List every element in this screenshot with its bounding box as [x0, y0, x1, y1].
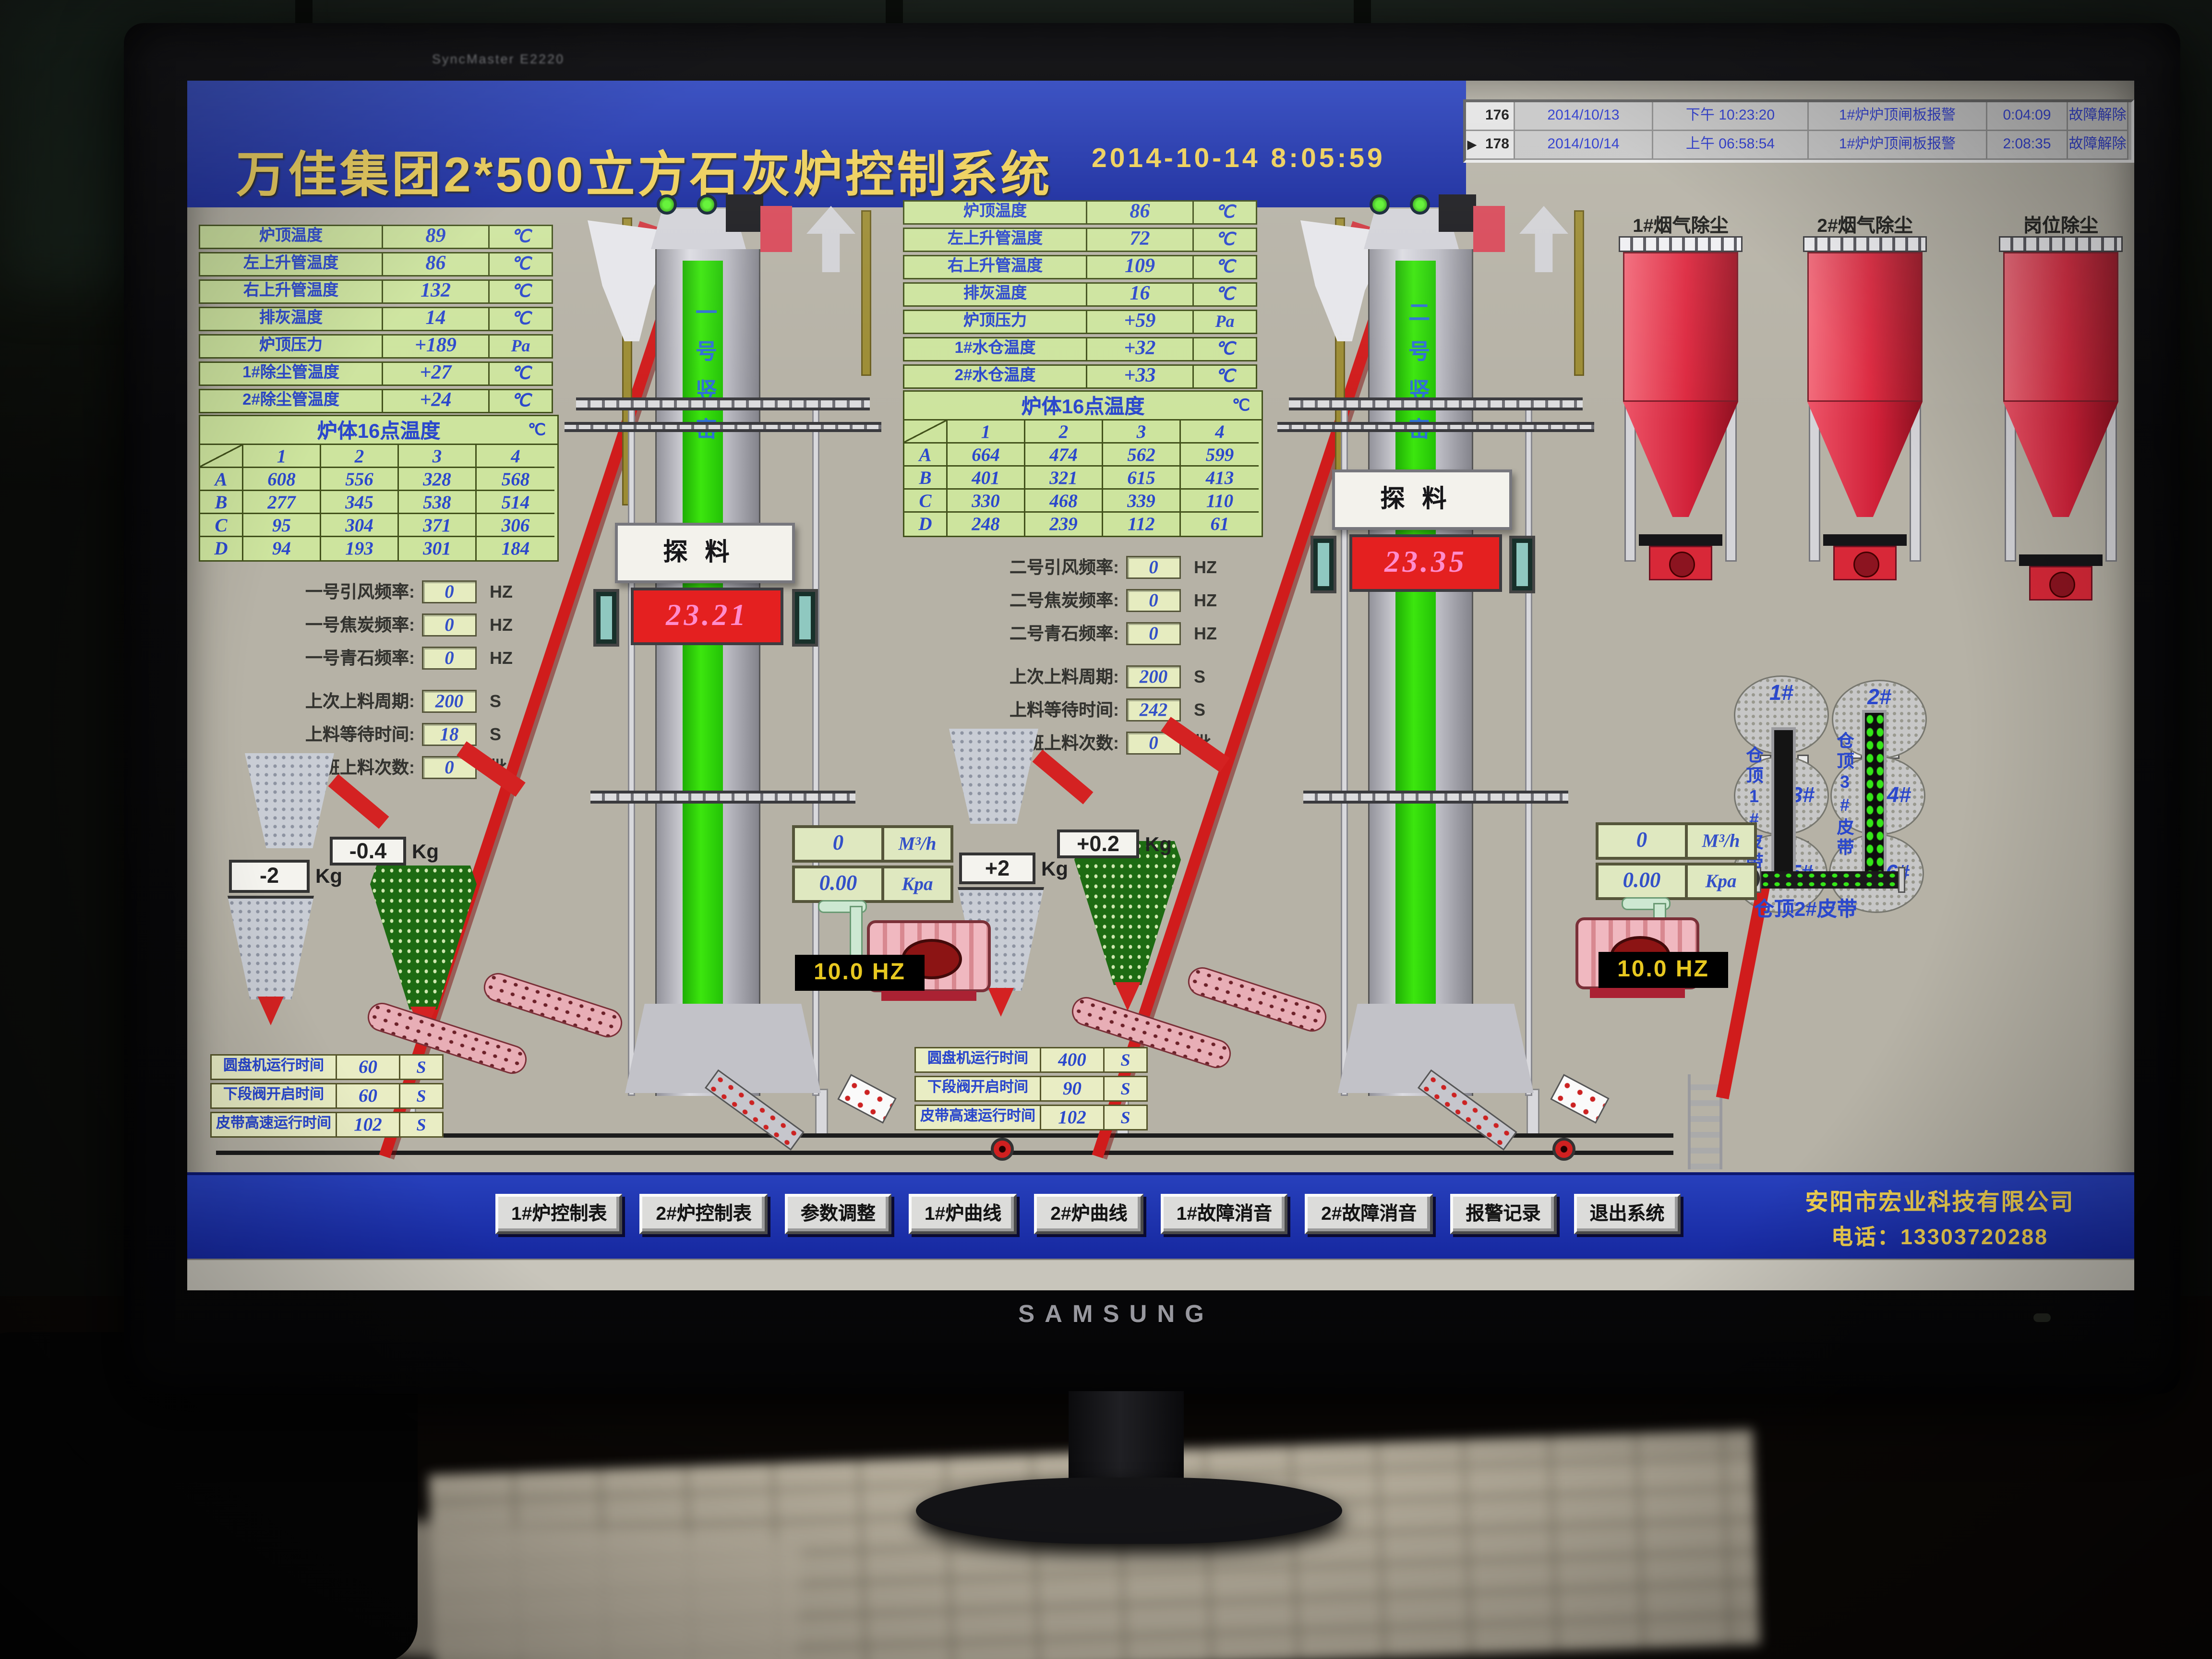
param-label: 一号青石频率:: [230, 645, 415, 670]
param-value-box[interactable]: 242: [1126, 698, 1181, 721]
temp-row: 1#除尘管温度 +27 ℃: [199, 361, 553, 386]
temp-value: 72: [1087, 228, 1194, 252]
power-led: [2033, 1313, 2051, 1322]
kiln-leg: [1525, 405, 1532, 1096]
matrix-cell: 339: [1103, 490, 1181, 513]
matrix-corner-cell: [200, 445, 243, 468]
dust-collector-body: [2003, 252, 2118, 402]
param-unit: HZ: [1194, 623, 1217, 643]
matrix-row: D 94 193 301 184: [200, 537, 557, 560]
alarm-row[interactable]: ▶178 2014/10/14 上午 06:58:54 1#炉炉顶闸板报警 2:…: [1466, 131, 2131, 160]
param-label: 上料等待时间:: [230, 721, 415, 746]
paper-sheet: [364, 1518, 803, 1659]
side-sensor: [1310, 536, 1336, 593]
temp-value: +59: [1087, 310, 1194, 334]
status-light-green: [1410, 194, 1430, 215]
temp-unit: ℃: [490, 361, 553, 386]
kiln2-probe-plate: 探料: [1332, 469, 1512, 530]
matrix-cell: 95: [243, 514, 321, 537]
temp-unit: ℃: [490, 252, 553, 276]
temp-label: 炉顶温度: [199, 225, 383, 249]
temp-value: +33: [1087, 364, 1194, 389]
temp-row: 炉顶压力 +189 Pa: [199, 334, 553, 359]
matrix-cell: 184: [477, 537, 554, 560]
matrix-cell: 345: [321, 491, 399, 514]
param-unit: HZ: [1194, 557, 1217, 577]
matrix-col: 4: [477, 445, 554, 468]
matrix-row: D 248 239 112 61: [904, 513, 1262, 536]
pole: [861, 210, 871, 376]
matrix-col: 1: [948, 421, 1025, 444]
alarm-time: 下午 10:23:20: [1653, 102, 1809, 131]
flow-readout: 0 M³/h: [1596, 822, 1757, 860]
matrix-col: 1: [243, 445, 321, 468]
alarm-log-table: 176 2014/10/13 下午 10:23:20 1#炉炉顶闸板报警 0:0…: [1463, 99, 2134, 163]
matrix-cell: 556: [321, 468, 399, 491]
temp-unit: ℃: [490, 307, 553, 331]
toolbar-button[interactable]: 1#炉控制表: [495, 1194, 623, 1234]
alarm-duration: 0:04:09: [1987, 102, 2068, 131]
runtime-value: 90: [1041, 1076, 1105, 1102]
matrix-cell: 608: [243, 468, 321, 491]
runtime-label: 圆盘机运行时间: [210, 1054, 337, 1080]
param-row: 上次上料周期: 200 S: [230, 688, 562, 713]
exhaust-arrow-icon: [806, 206, 855, 272]
pump-body: [1833, 546, 1897, 580]
runtime-unit: S: [400, 1083, 444, 1109]
temp-row: 右上升管温度 109 ℃: [903, 255, 1257, 279]
temp-unit: Pa: [1194, 310, 1257, 334]
matrix-header: 1 2 3 4: [904, 421, 1262, 444]
matrix-cell: 193: [321, 537, 399, 560]
furnace1-16pt-table: 炉体16点温度 ℃ 1 2 3 4 A 608 556: [199, 415, 559, 562]
temp-label: 排灰温度: [903, 282, 1087, 307]
param-value-box[interactable]: 0: [422, 613, 477, 636]
furnace1-temp-table: 炉顶温度 89 ℃ 左上升管温度 86 ℃ 右上升管温度 132 ℃: [199, 225, 553, 416]
param-value-box[interactable]: 0: [1126, 589, 1181, 612]
alarm-id: 176: [1485, 108, 1509, 124]
platform: [590, 791, 855, 804]
param-value-box[interactable]: 0: [1126, 622, 1181, 645]
runtime-unit: S: [400, 1112, 444, 1138]
matrix-cell: 330: [948, 490, 1025, 513]
matrix-row: A 608 556 328 568: [200, 468, 557, 491]
runtime-unit: S: [1105, 1105, 1148, 1130]
matrix-title: 炉体16点温度 ℃: [904, 392, 1262, 421]
feed-chute: [245, 753, 334, 848]
temp-value: 16: [1087, 282, 1194, 307]
temp-label: 炉顶压力: [903, 310, 1087, 334]
platform: [1289, 397, 1583, 410]
param-unit: HZ: [490, 648, 513, 668]
pressure-readout: 0.00 Kpa: [792, 866, 953, 903]
matrix-cell: 328: [399, 468, 477, 491]
platform: [1303, 791, 1568, 804]
matrix-col: 3: [399, 445, 477, 468]
temp-value: 132: [383, 279, 490, 304]
matrix-row-label: C: [200, 514, 243, 537]
param-label: 上次上料周期:: [935, 664, 1119, 688]
temp-row: 左上升管温度 86 ℃: [199, 252, 553, 276]
matrix-col: 4: [1181, 421, 1259, 444]
blower-frequency-display: 10.0 HZ: [1599, 952, 1728, 988]
temp-row: 1#水仓温度 +32 ℃: [903, 337, 1257, 361]
temp-label: 右上升管温度: [903, 255, 1087, 279]
hmi-screen: 万佳集团2*500立方石灰炉控制系统 2014-10-14 8:05:59 17…: [187, 81, 2134, 1290]
feed-chute: [949, 729, 1038, 824]
matrix-row: B 401 321 615 413: [904, 467, 1262, 490]
matrix-row: B 277 345 538 514: [200, 491, 557, 514]
runtime-row: 下段阀开启时间 90 S: [914, 1076, 1148, 1102]
param-label: 一号焦炭频率:: [230, 612, 415, 637]
runtime-value: 102: [337, 1112, 400, 1138]
belt-end-plate: [1898, 867, 1905, 893]
matrix-cell: 61: [1181, 513, 1259, 536]
runtime-row: 圆盘机运行时间 400 S: [914, 1047, 1148, 1073]
matrix-cell: 301: [399, 537, 477, 560]
param-row: 二号引风频率: 0 HZ: [935, 554, 1266, 579]
temp-unit: ℃: [490, 225, 553, 249]
kiln1-name-label: 一号竖窑: [690, 301, 720, 457]
pressure-value: 0.00: [1596, 863, 1688, 900]
flow-unit: M³/h: [1688, 822, 1757, 860]
furnace2-16pt-table: 炉体16点温度 ℃ 1 2 3 4 A 664 474: [903, 390, 1263, 537]
matrix-title: 炉体16点温度 ℃: [200, 416, 557, 445]
kiln-top-red-valve: [1473, 206, 1505, 252]
matrix-cell: 94: [243, 537, 321, 560]
pressure-readout: 0.00 Kpa: [1596, 863, 1757, 900]
temp-row: 2#水仓温度 +33 ℃: [903, 364, 1257, 389]
conveyor-wheel: [1552, 1138, 1575, 1161]
matrix-row-label: D: [904, 513, 948, 536]
alarm-date: 2014/10/13: [1515, 102, 1653, 131]
matrix-title-text: 炉体16点温度: [317, 419, 441, 442]
param-label: 上次上料周期:: [230, 688, 415, 713]
pump-body: [1649, 546, 1712, 580]
temp-row: 排灰温度 16 ℃: [903, 282, 1257, 307]
discharge-cone: [258, 997, 284, 1025]
runtime-label: 下段阀开启时间: [914, 1076, 1041, 1102]
pump-body: [2029, 566, 2092, 601]
dust-collector-label: 2#烟气除尘: [1803, 210, 1927, 233]
selected-row-marker: ▶: [1467, 131, 1476, 158]
matrix-title-text: 炉体16点温度: [1022, 395, 1145, 418]
runtime-label: 圆盘机运行时间: [914, 1047, 1041, 1073]
temp-label: 1#除尘管温度: [199, 361, 383, 386]
status-light-green: [697, 194, 717, 215]
vibrating-feeder: [837, 1074, 897, 1124]
runtime-unit: S: [1105, 1047, 1148, 1073]
temp-label: 炉顶温度: [903, 200, 1087, 225]
silo-belt-1: [1771, 727, 1796, 877]
vendor-phone: 电话：13303720288: [1751, 1221, 2128, 1251]
silo-label: 4#: [1887, 783, 1911, 808]
matrix-row-label: B: [200, 491, 243, 514]
matrix-unit: ℃: [528, 416, 546, 445]
kiln2-probe-depth-display: 23.35: [1349, 534, 1502, 592]
kiln-top-box: [1439, 194, 1476, 232]
alarm-status: 故障解除: [2068, 131, 2128, 160]
temp-value: 89: [383, 225, 490, 249]
pole: [1574, 210, 1584, 376]
title-banner: 万佳集团2*500立方石灰炉控制系统 2014-10-14 8:05:59: [187, 81, 1466, 207]
param-row: 二号焦炭频率: 0 HZ: [935, 588, 1266, 612]
flow-value: 0: [792, 825, 884, 863]
param-unit: S: [1194, 699, 1205, 720]
dust-collector-body: [1807, 252, 1923, 402]
dust-collector-flange: [1803, 236, 1927, 252]
param-value-box[interactable]: 0: [422, 580, 477, 603]
param-value-box[interactable]: 18: [422, 722, 477, 745]
page-title: 万佳集团2*500立方石灰炉控制系统: [236, 135, 1053, 206]
kiln1-probe-plate: 探料: [615, 523, 795, 583]
flow-readout: 0 M³/h: [792, 825, 953, 863]
alarm-id: 178: [1485, 137, 1509, 153]
temp-unit: ℃: [1194, 282, 1257, 307]
matrix-row-label: B: [904, 467, 948, 490]
toolbar-button[interactable]: 退出系统: [1574, 1194, 1681, 1234]
stone-weight-display: -0.4: [330, 837, 406, 866]
alarm-date: 2014/10/14: [1515, 131, 1653, 160]
furnace1-runtime-table: 圆盘机运行时间 60 S 下段阀开启时间 60 S 皮带高速运行时间 102 S: [210, 1054, 444, 1141]
matrix-cell: 514: [477, 491, 554, 514]
matrix-col: 3: [1103, 421, 1181, 444]
param-unit: S: [490, 691, 501, 711]
temp-row: 右上升管温度 132 ℃: [199, 279, 553, 304]
bottom-toolbar: 1#炉控制表2#炉控制表参数调整1#炉曲线2#炉曲线1#故障消音2#故障消音报警…: [187, 1172, 2134, 1259]
screen-bottom-strip: [187, 1259, 2134, 1290]
temp-unit: ℃: [1194, 337, 1257, 361]
matrix-cell: 112: [1103, 513, 1181, 536]
temp-label: 2#除尘管温度: [199, 389, 383, 413]
temp-row: 左上升管温度 72 ℃: [903, 228, 1257, 252]
runtime-value: 60: [337, 1054, 400, 1080]
dust-discharge-pump: [2029, 554, 2092, 601]
matrix-cell: 306: [477, 514, 554, 537]
runtime-unit: S: [1105, 1076, 1148, 1102]
temp-row: 排灰温度 14 ℃: [199, 307, 553, 331]
runtime-label: 皮带高速运行时间: [210, 1112, 337, 1138]
temp-label: 右上升管温度: [199, 279, 383, 304]
runtime-value: 60: [337, 1083, 400, 1109]
silo-label: 2#: [1867, 685, 1891, 710]
kiln1-material-column: 一号竖窑: [683, 261, 723, 1084]
coke-weigh-hopper: [228, 896, 314, 999]
status-light-green: [657, 194, 677, 215]
silo-belt-3: [1862, 710, 1887, 877]
param-value-box[interactable]: 0: [1126, 555, 1181, 578]
alarm-time: 上午 06:58:54: [1653, 131, 1809, 160]
toolbar-button[interactable]: 参数调整: [785, 1194, 891, 1234]
param-value-box[interactable]: 200: [422, 689, 477, 712]
temp-value: +189: [383, 334, 490, 359]
param-label: 一号引风频率:: [230, 579, 415, 603]
matrix-cell: 615: [1103, 467, 1181, 490]
temp-value: 86: [1087, 200, 1194, 225]
stone-weight-unit: Kg: [412, 840, 439, 863]
runtime-label: 下段阀开启时间: [210, 1083, 337, 1109]
alarm-status: 故障解除: [2068, 102, 2128, 131]
matrix-cell: 538: [399, 491, 477, 514]
temp-row: 炉顶压力 +59 Pa: [903, 310, 1257, 334]
monitor-stand-base: [916, 1478, 1342, 1544]
temp-label: 左上升管温度: [199, 252, 383, 276]
dust-discharge-pump: [1649, 534, 1712, 580]
runtime-row: 下段阀开启时间 60 S: [210, 1083, 444, 1109]
runtime-value: 400: [1041, 1047, 1105, 1073]
runtime-unit: S: [400, 1054, 444, 1080]
kiln2-material-column: 二号竖窑: [1395, 261, 1436, 1084]
param-label: 二号焦炭频率:: [935, 588, 1119, 612]
platform: [1277, 422, 1594, 432]
kiln2-blower-group: 0 M³/h 0.00 Kpa 10.0 HZ: [1596, 822, 1757, 903]
matrix-cell: 277: [243, 491, 321, 514]
toolbar-button[interactable]: 2#炉曲线: [1034, 1194, 1143, 1234]
toolbar-button[interactable]: 2#故障消音: [1305, 1194, 1432, 1234]
param-value-box[interactable]: 200: [1126, 665, 1181, 688]
matrix-row: C 95 304 371 306: [200, 514, 557, 537]
temp-label: 2#水仓温度: [903, 364, 1087, 389]
kiln2-name-label: 二号竖窑: [1403, 301, 1433, 457]
temp-label: 排灰温度: [199, 307, 383, 331]
param-unit: S: [490, 724, 501, 744]
runtime-row: 圆盘机运行时间 60 S: [210, 1054, 444, 1080]
param-unit: HZ: [1194, 590, 1217, 610]
dust-collector-label: 岗位除尘: [1999, 210, 2123, 233]
toolbar-buttons: 1#炉控制表2#炉控制表参数调整1#炉曲线2#炉曲线1#故障消音2#故障消音报警…: [495, 1194, 1681, 1234]
temp-value: +24: [383, 389, 490, 413]
pump-mount: [1823, 534, 1907, 546]
param-unit: HZ: [490, 614, 513, 635]
alarm-message: 1#炉炉顶闸板报警: [1809, 131, 1987, 160]
matrix-cell: 562: [1103, 444, 1181, 467]
matrix-row: A 664 474 562 599: [904, 444, 1262, 467]
matrix-cell: 664: [948, 444, 1025, 467]
alarm-row[interactable]: 176 2014/10/13 下午 10:23:20 1#炉炉顶闸板报警 0:0…: [1466, 102, 2131, 131]
exhaust-arrow-icon: [1519, 206, 1568, 272]
matrix-cell: 468: [1025, 490, 1103, 513]
matrix-cell: 304: [321, 514, 399, 537]
param-row: 二号青石频率: 0 HZ: [935, 621, 1266, 645]
matrix-unit: ℃: [1232, 392, 1250, 421]
param-value-box[interactable]: 0: [422, 646, 477, 669]
temp-unit: Pa: [490, 334, 553, 359]
platform: [576, 397, 870, 410]
matrix-body: A 664 474 562 599 B 401 321 615 413: [904, 444, 1262, 536]
alarm-duration: 2:08:35: [1987, 131, 2068, 160]
param-row: 一号引风频率: 0 HZ: [230, 579, 562, 603]
platform: [565, 422, 881, 432]
matrix-cell: 474: [1025, 444, 1103, 467]
matrix-cell: 568: [477, 468, 554, 491]
runtime-value: 102: [1041, 1105, 1105, 1130]
toolbar-button[interactable]: 2#炉控制表: [640, 1194, 767, 1234]
param-unit: S: [1194, 666, 1205, 686]
temp-value: 86: [383, 252, 490, 276]
temp-value: 109: [1087, 255, 1194, 279]
temp-label: 左上升管温度: [903, 228, 1087, 252]
matrix-cell: 239: [1025, 513, 1103, 536]
temp-unit: ℃: [1194, 364, 1257, 389]
monitor-brand-logo: SAMSUNG: [907, 1300, 1325, 1329]
status-light-green: [1370, 194, 1390, 215]
dust-discharge-pump: [1833, 534, 1897, 580]
temp-value: +32: [1087, 337, 1194, 361]
kiln1-probe-depth-display: 23.21: [631, 588, 783, 645]
matrix-row-label: A: [200, 468, 243, 491]
kiln1-blower-group: 0 M³/h 0.00 Kpa 10.0 HZ: [792, 825, 953, 906]
matrix-corner-cell: [904, 421, 948, 444]
dust-collector-flange: [1619, 236, 1743, 252]
param-row: 上料等待时间: 18 S: [230, 721, 562, 746]
flow-unit: M³/h: [884, 825, 953, 863]
pump-mount: [1639, 534, 1722, 546]
alarm-message: 1#炉炉顶闸板报警: [1809, 102, 1987, 131]
matrix-row-label: C: [904, 490, 948, 513]
temp-label: 1#水仓温度: [903, 337, 1087, 361]
limestone-weigh-hopper: [370, 866, 477, 1010]
pressure-value: 0.00: [792, 866, 884, 903]
temp-row: 2#除尘管温度 +24 ℃: [199, 389, 553, 413]
kiln-top-red-valve: [760, 206, 792, 252]
matrix-header: 1 2 3 4: [200, 445, 557, 468]
silo-belt-2: [1760, 871, 1899, 889]
runtime-row: 皮带高速运行时间 102 S: [914, 1105, 1148, 1130]
matrix-cell: 413: [1181, 467, 1259, 490]
furnace2-runtime-table: 圆盘机运行时间 400 S 下段阀开启时间 90 S 皮带高速运行时间 102 …: [914, 1047, 1148, 1133]
furnace1-panel: 炉顶温度 89 ℃ 左上升管温度 86 ℃ 右上升管温度 132 ℃: [199, 225, 573, 1175]
kiln-2-graphic: 二号竖窑 探料 23.35: [1277, 203, 1594, 1125]
dust-collector-flange: [1999, 236, 2123, 252]
pressure-unit: Kpa: [884, 866, 953, 903]
toolbar-button[interactable]: 报警记录: [1450, 1194, 1556, 1234]
temp-value: 14: [383, 307, 490, 331]
silo-belt3-label: 仓顶3#皮带: [1833, 732, 1858, 897]
matrix-row-label: A: [904, 444, 948, 467]
dust-collector-label: 1#烟气除尘: [1619, 210, 1743, 233]
matrix-cell: 599: [1181, 444, 1259, 467]
matrix-cell: 248: [948, 513, 1025, 536]
toolbar-button[interactable]: 1#故障消音: [1161, 1194, 1288, 1234]
discharge-cone: [988, 988, 1014, 1017]
param-row: 一号焦炭频率: 0 HZ: [230, 612, 562, 637]
temp-unit: ℃: [1194, 200, 1257, 225]
temp-unit: ℃: [1194, 255, 1257, 279]
matrix-row-label: D: [200, 537, 243, 560]
toolbar-button[interactable]: 1#炉曲线: [909, 1194, 1017, 1234]
temp-row: 炉顶温度 89 ℃: [199, 225, 553, 249]
runtime-row: 皮带高速运行时间 102 S: [210, 1112, 444, 1138]
temp-unit: ℃: [490, 389, 553, 413]
coke-weight-unit: Kg: [315, 864, 342, 887]
coke-weight-display: -2: [229, 860, 310, 893]
param-unit: HZ: [490, 581, 513, 601]
alarm-index: ▶178: [1466, 131, 1515, 160]
vendor-info: 安阳市宏业科技有限公司 电话：13303720288: [1751, 1182, 2128, 1251]
monitor-model-label: SyncMaster E2220: [432, 52, 565, 66]
matrix-col: 2: [1025, 421, 1103, 444]
silo-belt2-label: 仓顶2#皮带: [1754, 894, 1920, 923]
dust-collector-unit: 岗位除尘: [1999, 210, 2123, 601]
pump-mount: [2019, 554, 2103, 566]
param-row: 上料等待时间: 242 S: [935, 697, 1266, 721]
limestone-weigh-hopper: [1074, 841, 1181, 985]
side-sensor: [1509, 536, 1535, 593]
flow-value: 0: [1596, 822, 1688, 860]
silo-label: 1#: [1769, 681, 1793, 706]
param-label: 二号青石频率:: [935, 621, 1119, 645]
param-row: 上次上料周期: 200 S: [935, 664, 1266, 688]
